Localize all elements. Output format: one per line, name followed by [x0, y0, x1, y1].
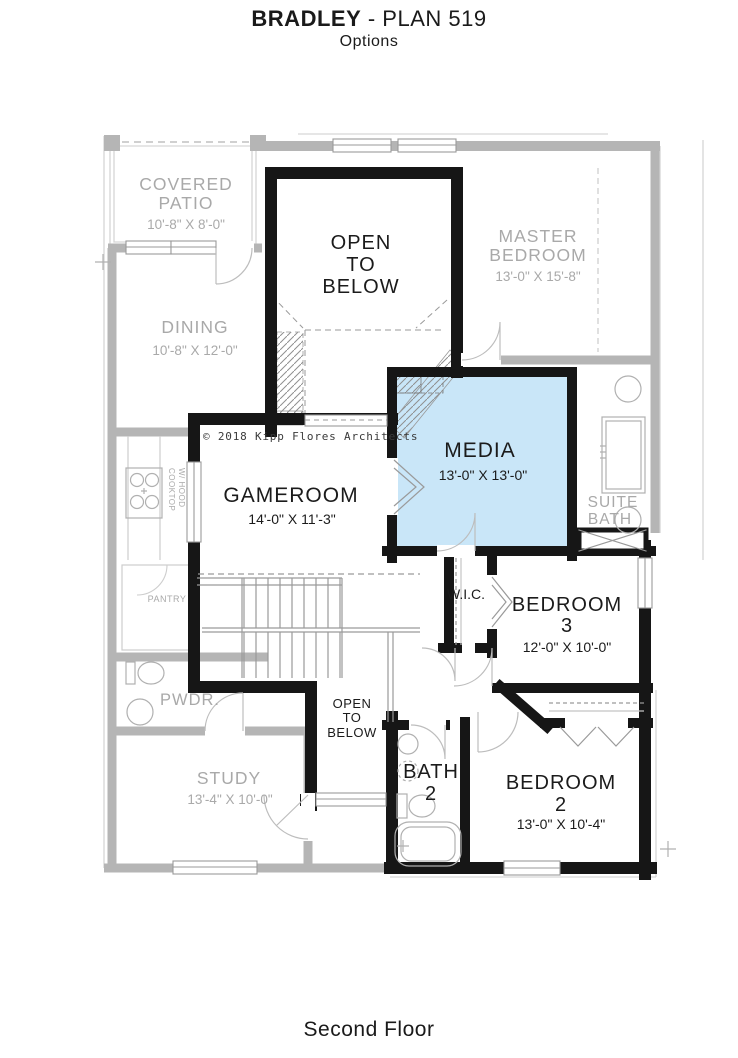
label-dining: DINING	[161, 317, 228, 337]
label-bedroom3-dims: 12'-0" X 10'-0"	[523, 639, 611, 655]
label-open-below-lower-2: TO	[343, 710, 362, 725]
label-open-below-lower: OPEN	[333, 696, 372, 711]
stair-half-wall	[197, 578, 342, 585]
window	[398, 139, 456, 152]
open-below-railing	[388, 632, 393, 722]
label-cooktop-2: W/ HOOD	[177, 468, 186, 508]
label-master-2: BEDROOM	[489, 245, 586, 265]
bath2-toilet-tank	[397, 794, 407, 818]
label-master-dims: 13'-0" X 15'-8"	[495, 269, 580, 284]
label-bath2-2: 2	[425, 783, 437, 805]
powder-toilet-tank	[126, 662, 135, 684]
label-cooktop: COOKTOP	[167, 468, 176, 511]
label-pantry: PANTRY	[148, 594, 187, 604]
window	[504, 861, 560, 875]
label-covered-patio-dims: 10'-8" X 8'-0"	[147, 217, 225, 232]
label-gameroom: GAMEROOM	[223, 484, 358, 507]
label-bedroom3-2: 3	[561, 615, 573, 637]
bedroom2-closet-doors	[560, 727, 634, 746]
window	[171, 241, 216, 254]
window	[126, 241, 171, 254]
bath2-tub-faucet	[397, 840, 409, 852]
label-master: MASTER	[499, 226, 578, 246]
label-study: STUDY	[197, 768, 261, 788]
label-open-below-upper-2: TO	[346, 254, 375, 276]
suite-bath-sink	[615, 376, 641, 402]
window	[187, 462, 201, 542]
label-open-below-upper: OPEN	[331, 232, 392, 254]
label-bedroom2-dims: 13'-0" X 10'-4"	[517, 816, 605, 832]
window	[316, 793, 386, 806]
window	[173, 861, 257, 874]
label-bedroom3: BEDROOM	[512, 594, 622, 616]
label-suite-bath-2: BATH	[588, 511, 632, 528]
suite-bath-vanity-inner	[606, 421, 641, 489]
powder-toilet	[138, 662, 164, 684]
powder-sink	[127, 699, 153, 725]
label-powder: PWDR.	[160, 691, 220, 709]
label-open-below-upper-3: BELOW	[322, 276, 399, 298]
pantry-casework	[122, 565, 192, 650]
window	[638, 558, 652, 608]
label-covered-patio-2: PATIO	[159, 193, 214, 213]
floor-plan-page: BRADLEY - PLAN 519 Options	[0, 0, 738, 1058]
stair-rail	[202, 628, 420, 632]
label-open-below-lower-3: BELOW	[327, 725, 377, 740]
kitchen-counter	[128, 436, 160, 560]
window	[333, 139, 391, 152]
label-bath2: BATH	[403, 761, 459, 783]
bath2-tub-inner	[401, 827, 455, 861]
suite-bath-vanity	[602, 417, 645, 493]
label-covered-patio: COVERED	[139, 174, 233, 194]
label-suite-bath: SUITE	[588, 494, 639, 511]
label-bedroom2: BEDROOM	[506, 772, 616, 794]
label-dining-dims: 10'-8" X 12'-0"	[152, 343, 237, 358]
label-study-dims: 13'-4" X 10'-0"	[187, 792, 272, 807]
label-wic: W.I.C.	[447, 586, 485, 602]
label-bedroom2-2: 2	[555, 794, 567, 816]
half-wall	[305, 415, 387, 426]
linen-closet	[579, 530, 646, 551]
cooktop-fixture	[126, 468, 162, 518]
copyright-text: © 2018 Kipp Flores Architects	[203, 430, 418, 443]
pantry-door-arc	[137, 565, 167, 595]
label-media-dims: 13'-0" X 13'-0"	[439, 467, 527, 483]
floor-label: Second Floor	[0, 1018, 738, 1042]
patio-post	[104, 135, 120, 151]
bath2-sink	[398, 734, 418, 754]
label-media: MEDIA	[444, 439, 516, 462]
floor-plan-svg: COVERED PATIO 10'-8" X 8'-0" DINING 10'-…	[0, 0, 738, 1058]
bedroom3-door	[454, 648, 492, 686]
label-gameroom-dims: 14'-0" X 11'-3"	[248, 511, 335, 527]
